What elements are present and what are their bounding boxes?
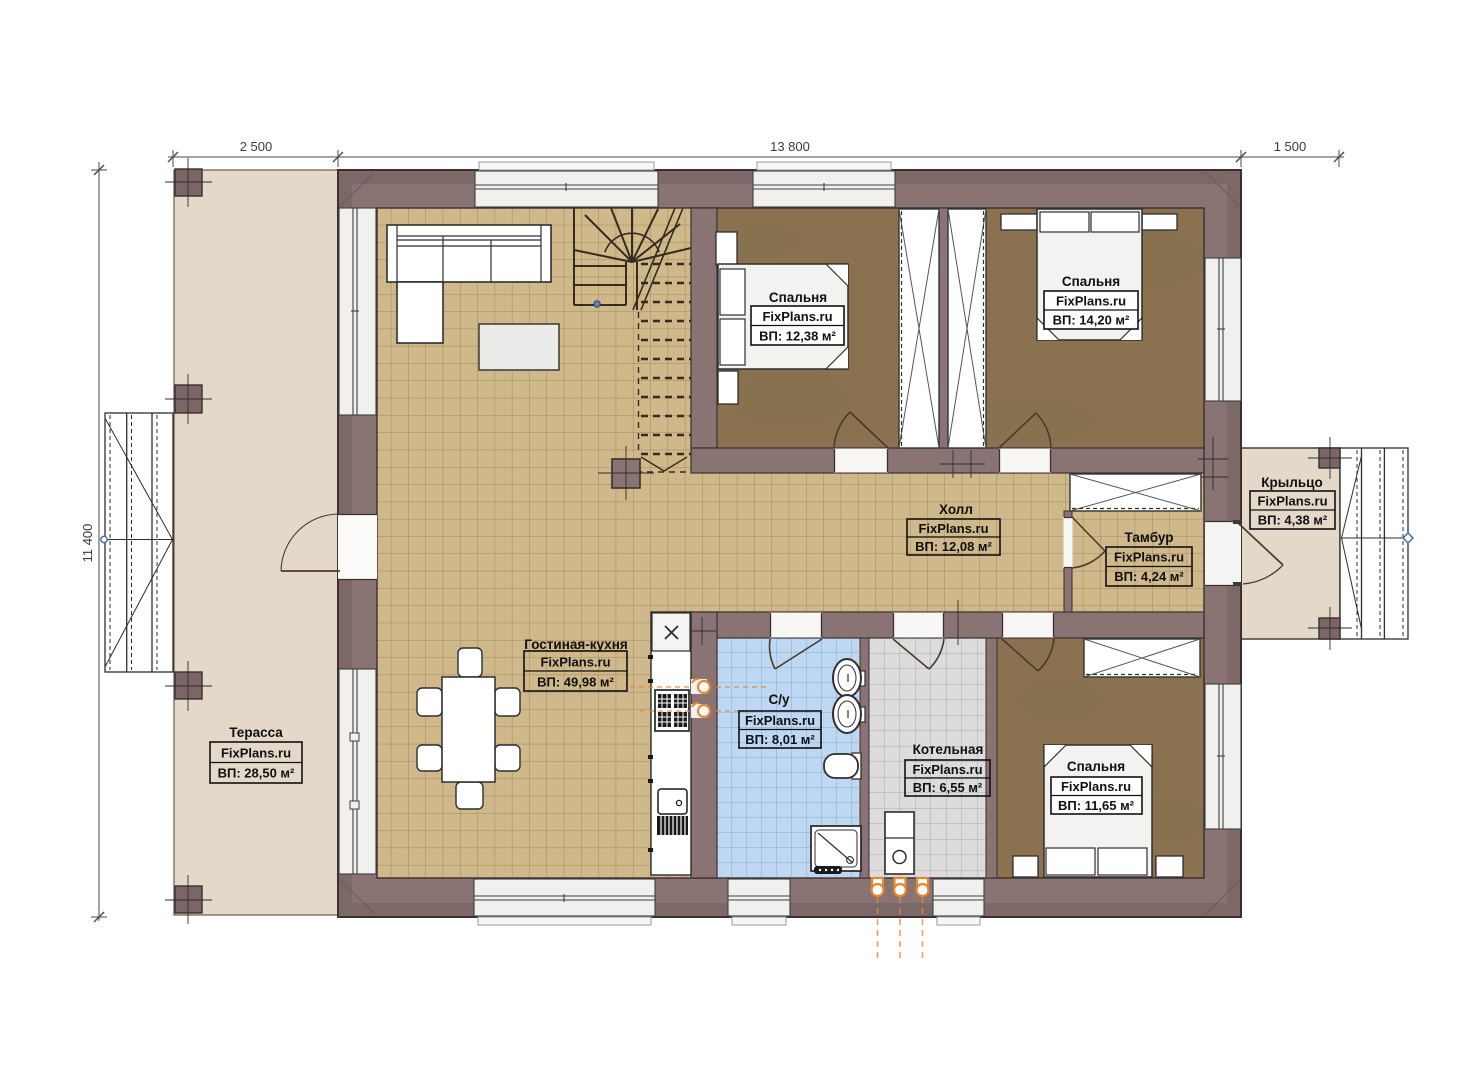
svg-text:2 500: 2 500 (240, 139, 273, 154)
svg-text:Гостиная-кухня: Гостиная-кухня (524, 637, 627, 652)
svg-text:FixPlans.ru: FixPlans.ru (1114, 550, 1184, 565)
svg-text:ВП: 12,38 м²: ВП: 12,38 м² (759, 329, 836, 344)
svg-text:Спальня: Спальня (1067, 759, 1125, 774)
svg-text:Терасса: Терасса (229, 725, 283, 740)
svg-text:Крыльцо: Крыльцо (1261, 475, 1322, 490)
svg-text:FixPlans.ru: FixPlans.ru (918, 521, 988, 536)
svg-text:FixPlans.ru: FixPlans.ru (762, 309, 832, 324)
svg-text:Спальня: Спальня (1062, 274, 1120, 289)
svg-text:ВП: 11,65 м²: ВП: 11,65 м² (1058, 798, 1135, 813)
svg-text:13 800: 13 800 (770, 139, 810, 154)
svg-text:ВП: 28,50 м²: ВП: 28,50 м² (218, 766, 295, 781)
svg-text:Холл: Холл (939, 502, 973, 517)
svg-text:ВП: 8,01 м²: ВП: 8,01 м² (745, 732, 815, 747)
svg-text:Тамбур: Тамбур (1125, 530, 1174, 545)
svg-text:ВП: 6,55 м²: ВП: 6,55 м² (913, 780, 983, 795)
svg-text:FixPlans.ru: FixPlans.ru (912, 762, 982, 777)
svg-text:Спальня: Спальня (769, 290, 827, 305)
svg-text:Котельная: Котельная (913, 742, 984, 757)
svg-text:FixPlans.ru: FixPlans.ru (745, 713, 815, 728)
svg-text:ВП: 49,98 м²: ВП: 49,98 м² (537, 675, 614, 690)
svg-text:FixPlans.ru: FixPlans.ru (221, 746, 291, 761)
svg-text:ВП: 12,08 м²: ВП: 12,08 м² (915, 539, 992, 554)
svg-text:ВП: 4,24 м²: ВП: 4,24 м² (1114, 569, 1184, 584)
svg-text:ВП: 14,20 м²: ВП: 14,20 м² (1053, 313, 1130, 328)
svg-text:FixPlans.ru: FixPlans.ru (1056, 294, 1126, 309)
svg-text:FixPlans.ru: FixPlans.ru (1061, 779, 1131, 794)
svg-text:ВП: 4,38 м²: ВП: 4,38 м² (1258, 513, 1328, 528)
svg-text:С/у: С/у (768, 692, 790, 707)
svg-text:1 500: 1 500 (1274, 139, 1307, 154)
svg-text:11 400: 11 400 (80, 524, 95, 563)
svg-text:FixPlans.ru: FixPlans.ru (1257, 494, 1327, 509)
svg-text:FixPlans.ru: FixPlans.ru (540, 655, 610, 670)
